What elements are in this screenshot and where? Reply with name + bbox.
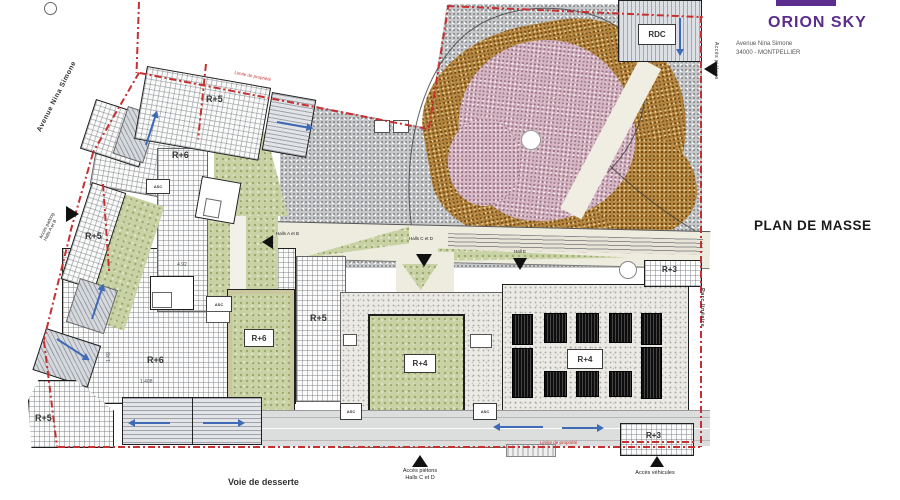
boundary-segment [700,16,702,447]
dimension-text: 4.92 [177,262,187,268]
label-rdc: RDC [638,24,676,45]
title-block-bar [776,0,836,6]
flow-arrow-road-right [562,427,598,429]
street-avenue-label: Avenue Nina Simone [36,60,78,133]
access-halls-cd-label: Halls C et D [406,236,436,241]
label-r4-center: R+4 [404,354,436,373]
park-fountain-circle [521,130,541,150]
lift-box-annex [206,311,230,323]
street-park-label: Parc linéaire [699,288,705,350]
label-r3-north: R+3 [662,265,677,274]
lift-box: ASC [473,403,497,420]
deck-box-1 [343,334,357,346]
label-r6-block: R+6 [244,329,274,347]
lift-label: ASC [347,409,355,414]
label-r5-west: R+5 [85,231,102,241]
flow-arrow-ramp-south-right [203,422,239,424]
solar-panel [641,347,662,399]
access-hall-e-label: Hall E [506,249,534,254]
access-arrowhead-halls-cd [416,254,432,267]
survey-point-circle [44,2,57,15]
label-text: R+6 [252,334,267,343]
flow-arrow-ramp-south-left [134,422,170,424]
lot-line [622,441,694,443]
label-r4-east: R+4 [567,349,603,369]
project-title: ORION SKY [768,14,867,32]
pavilion-north-core [203,198,222,219]
label-text: R+4 [578,355,593,364]
flow-arrow-road-left [499,426,543,428]
lift-label: ASC [215,302,223,307]
access-arrowhead-west [66,206,79,222]
boundary-segment [58,446,703,448]
boundary-segment [136,2,140,73]
access-arrowhead-hall-e [513,258,527,270]
project-address: Avenue Nina Simone 34000 - MONTPELLIER [736,40,800,57]
solar-panel [609,313,632,343]
label-r6-upper: R+6 [172,150,189,160]
lift-label: ASC [481,409,489,414]
solar-panel [576,371,599,397]
label-r3-south: R+3 [646,431,661,440]
project-address-line1: Avenue Nina Simone [736,40,800,49]
label-r5-top: R+5 [206,94,223,104]
solar-panel [576,313,599,343]
solar-panel [512,348,533,398]
slab-r5-mid [296,256,346,402]
label-r5-corner: R+5 [35,413,52,423]
pavilion-west-core [152,292,172,308]
flow-arrow-rdc [679,18,681,50]
access-vehicles-label: Accès véhicules [624,470,686,477]
lift-label: ASC [154,184,162,189]
tree-circle-east [619,261,637,279]
label-r6-lower: R+6 [147,355,164,365]
ramp-south-divider [192,398,193,444]
lift-box: ASC [340,403,362,420]
access-arrowhead-halls-ab [262,235,273,249]
plan-title: PLAN DE MASSE [754,218,872,233]
boundary-caption: Limite de propriété [234,70,272,82]
deck-box-2 [470,334,492,348]
access-south-line2: Halls C et D [382,475,458,482]
access-arrowhead-south [412,455,428,467]
access-pedestrian-ne-label: Accès piétons [713,42,719,114]
solar-panel [609,371,632,397]
courtyard-mid-a [208,210,230,310]
project-address-line2: 34000 - MONTPELLIER [736,49,800,58]
street-service-road-label: Voie de desserte [228,477,299,487]
solar-panel [512,314,533,345]
solar-panel [641,313,662,345]
dimension-text: 1.408 [140,379,153,385]
access-arrowhead-vehicles [650,456,664,467]
label-r5-mid: R+5 [310,313,327,323]
access-parking-west-label: Accès parking Halls A et B [38,212,60,242]
access-pedestrian-south-label: Accès piétons Halls C et D [382,468,458,482]
lift-box: ASC [146,179,170,194]
solar-panel [544,313,567,343]
label-text: R+4 [413,359,428,368]
access-south-line1: Accès piétons [382,468,458,475]
dimension-text: 1.49 [106,352,112,362]
lift-box: ASC [206,296,232,312]
site-plan-canvas: ASC ASC ASC ASC R+5 R+6 R+5 R+6 R+5 R+5 … [0,0,900,500]
access-halls-ab-label: Halls A et B [276,231,300,236]
label-text: RDC [648,30,665,39]
boundary-caption: Limite de propriété [540,440,577,445]
solar-panel [544,371,567,397]
